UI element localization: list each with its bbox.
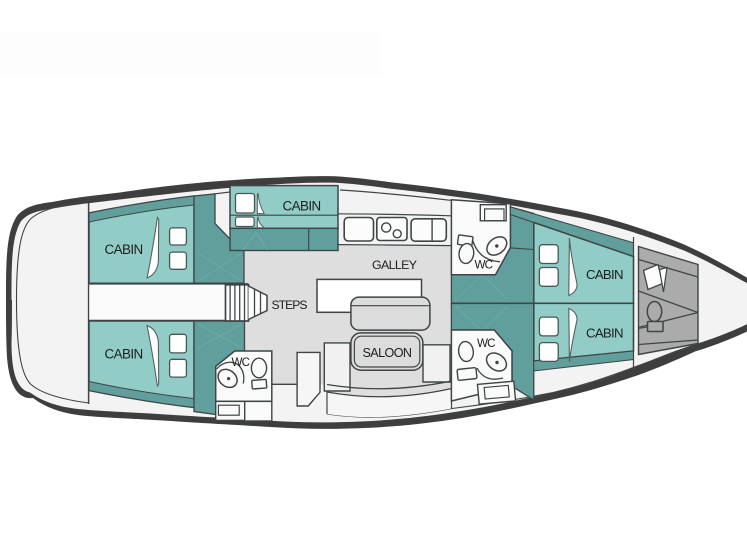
svg-text:SALOON: SALOON	[363, 346, 412, 360]
svg-text:STEPS: STEPS	[272, 298, 308, 312]
svg-text:GALLEY: GALLEY	[372, 258, 417, 272]
svg-text:WC: WC	[232, 356, 250, 369]
svg-text:CABIN: CABIN	[283, 199, 321, 214]
svg-text:WC: WC	[475, 258, 493, 271]
svg-text:CABIN: CABIN	[586, 267, 623, 282]
svg-text:CABIN: CABIN	[586, 326, 623, 341]
svg-text:CABIN: CABIN	[105, 242, 143, 257]
svg-text:CABIN: CABIN	[105, 347, 143, 362]
svg-text:WC: WC	[477, 337, 495, 350]
